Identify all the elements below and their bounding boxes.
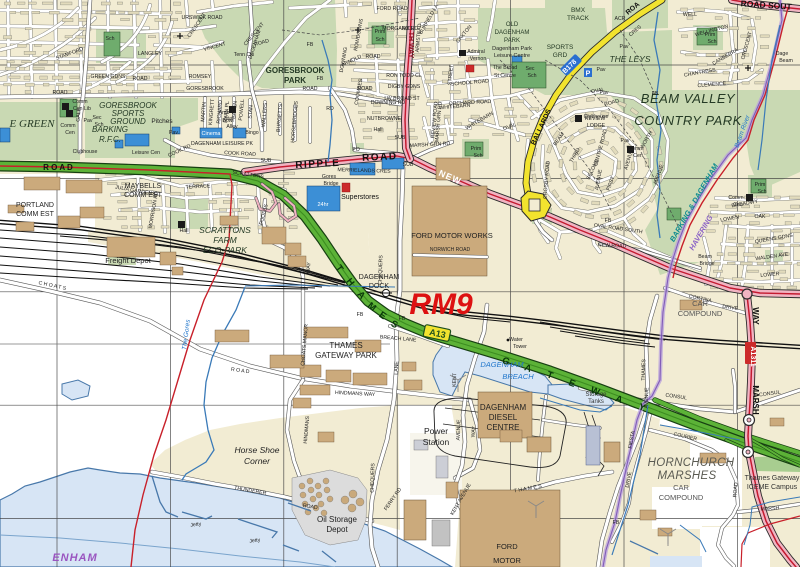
svg-text:Pav: Pav: [597, 67, 606, 73]
svg-text:Sch: Sch: [758, 189, 767, 195]
svg-text:FARM: FARM: [213, 235, 237, 245]
svg-text:Leisure Cen: Leisure Cen: [132, 150, 160, 156]
svg-text:ENHAM: ENHAM: [52, 552, 97, 564]
svg-text:ROAD: ROAD: [303, 86, 318, 92]
svg-text:WELL: WELL: [683, 12, 697, 18]
svg-text:Cen Lib: Cen Lib: [73, 106, 91, 112]
svg-text:Oil Storage: Oil Storage: [317, 515, 358, 524]
svg-text:Sch: Sch: [95, 122, 104, 128]
svg-text:GORESBROOK: GORESBROOK: [266, 66, 325, 75]
svg-text:Pav: Pav: [84, 118, 93, 124]
svg-text:LANGLEY: LANGLEY: [138, 51, 162, 57]
svg-text:Pitches: Pitches: [151, 118, 173, 125]
svg-text:Sta: Sta: [224, 116, 232, 122]
svg-text:Water: Water: [509, 337, 523, 343]
svg-text:Tower: Tower: [513, 344, 527, 350]
svg-text:BMX: BMX: [571, 7, 586, 14]
svg-text:Pav.: Pav.: [169, 130, 179, 136]
svg-text:GRD: GRD: [553, 52, 568, 59]
svg-text:MORGAN CL: MORGAN CL: [382, 26, 414, 32]
svg-text:Beam: Beam: [779, 58, 793, 64]
svg-text:FB: FB: [307, 42, 314, 48]
svg-text:WAY: WAY: [306, 262, 313, 274]
svg-text:NUTBROWNE: NUTBROWNE: [367, 116, 402, 122]
svg-text:GATEWAY PARK: GATEWAY PARK: [315, 351, 377, 360]
svg-text:St Centre: St Centre: [494, 73, 516, 79]
svg-text:Superstores: Superstores: [341, 194, 379, 201]
svg-text:SPORTS: SPORTS: [547, 44, 574, 51]
svg-text:FORD: FORD: [496, 542, 518, 551]
svg-text:Corner: Corner: [244, 456, 271, 466]
svg-text:Alley: Alley: [226, 124, 238, 130]
svg-text:GORESBROOK: GORESBROOK: [186, 86, 224, 92]
svg-text:Pav: Pav: [621, 138, 630, 144]
svg-text:Cen: Cen: [633, 153, 643, 159]
svg-text:PARK: PARK: [504, 38, 520, 44]
svg-text:P: P: [586, 71, 591, 78]
svg-text:Comm: Comm: [728, 195, 743, 201]
svg-text:TH WAY: TH WAY: [407, 32, 414, 59]
svg-text:COMPOUND: COMPOUND: [659, 493, 704, 502]
svg-text:R O A D: R O A D: [43, 163, 73, 172]
svg-text:Leisure Centre: Leisure Centre: [494, 53, 530, 59]
svg-text:COMPOUND: COMPOUND: [678, 309, 723, 318]
svg-text:RM9: RM9: [409, 288, 473, 321]
svg-text:Sch: Sch: [474, 153, 483, 159]
svg-text:Comm: Comm: [60, 123, 75, 129]
svg-text:MARSHES: MARSHES: [658, 470, 717, 482]
svg-text:E GREEN: E GREEN: [9, 118, 56, 130]
svg-text:PORTLAND: PORTLAND: [16, 202, 54, 209]
svg-text:Hall: Hall: [374, 127, 383, 133]
svg-text:Power: Power: [424, 426, 448, 436]
svg-text:CAR: CAR: [673, 483, 689, 492]
svg-text:R.F.C.: R.F.C.: [99, 135, 121, 144]
svg-text:Station: Station: [423, 437, 450, 447]
svg-text:MOTOR: MOTOR: [493, 556, 521, 565]
svg-text:MARSH: MARSH: [751, 385, 760, 415]
svg-text:THAMES: THAMES: [641, 359, 648, 381]
svg-text:A1311: A1311: [749, 346, 756, 366]
svg-text:THAMES: THAMES: [329, 341, 362, 350]
svg-text:AVENUE: AVENUE: [456, 419, 463, 441]
svg-text:HORNCHURCH: HORNCHURCH: [648, 457, 735, 469]
svg-text:Comm: Comm: [72, 99, 87, 105]
svg-text:Cen: Cen: [65, 130, 75, 136]
svg-text:LODGE: LODGE: [587, 123, 606, 129]
svg-text:OLD: OLD: [506, 22, 519, 28]
svg-text:FB: FB: [357, 312, 364, 318]
svg-text:SUB: SUB: [395, 135, 406, 141]
svg-text:LANE: LANE: [394, 361, 400, 375]
svg-text:DAGENHAM: DAGENHAM: [495, 30, 530, 36]
svg-text:AVENUE: AVENUE: [644, 387, 651, 409]
svg-text:COUNTRY PARK: COUNTRY PARK: [634, 113, 742, 128]
svg-text:KENT: KENT: [452, 372, 459, 387]
svg-text:GREEN GDNS: GREEN GDNS: [91, 74, 126, 80]
svg-text:Cinema: Cinema: [202, 131, 222, 137]
svg-text:FB: FB: [613, 520, 620, 526]
svg-text:Horse Shoe: Horse Shoe: [235, 445, 280, 455]
svg-text:SUB: SUB: [261, 158, 272, 164]
svg-text:NORWICH ROAD: NORWICH ROAD: [430, 247, 471, 253]
svg-text:COMM EST: COMM EST: [16, 211, 54, 218]
svg-text:Cen: Cen: [733, 202, 743, 208]
svg-text:Sch: Sch: [528, 73, 537, 79]
svg-text:SUB: SUB: [403, 162, 414, 168]
svg-text:Sch: Sch: [106, 36, 115, 42]
svg-text:ROAD: ROAD: [362, 151, 398, 164]
svg-text:SCRATTONS: SCRATTONS: [199, 225, 251, 235]
svg-text:ACR: ACR: [615, 16, 626, 22]
svg-text:PO: PO: [352, 147, 360, 153]
svg-text:DAGENHAM: DAGENHAM: [480, 403, 527, 412]
svg-text:Gores: Gores: [322, 174, 337, 180]
svg-text:OAK: OAK: [755, 214, 766, 220]
svg-text:STAN: STAN: [247, 105, 254, 119]
svg-text:Sec: Sec: [93, 115, 102, 121]
svg-text:FB: FB: [399, 316, 406, 322]
svg-text:URSWICK ROAD: URSWICK ROAD: [182, 15, 223, 21]
svg-text:FB: FB: [652, 91, 659, 97]
svg-text:PARK: PARK: [284, 76, 306, 85]
svg-text:FORD MOTOR WORKS: FORD MOTOR WORKS: [411, 231, 493, 240]
svg-text:CHEQUERS: CHEQUERS: [377, 255, 384, 285]
svg-text:ROAD: ROAD: [133, 76, 148, 82]
svg-text:Prim: Prim: [755, 182, 766, 188]
svg-text:Beam: Beam: [698, 254, 712, 260]
svg-text:RON TODD CL: RON TODD CL: [386, 73, 422, 79]
svg-text:ROMSEY: ROMSEY: [189, 74, 212, 80]
svg-text:ROAD: ROAD: [366, 54, 381, 60]
svg-text:The Broad: The Broad: [493, 65, 517, 71]
svg-text:CENTRE: CENTRE: [487, 423, 520, 432]
svg-text:CHEQUERS: CHEQUERS: [369, 463, 376, 493]
svg-text:Tanks: Tanks: [588, 399, 604, 405]
svg-text:DIESEL: DIESEL: [489, 413, 518, 422]
svg-text:Prim: Prim: [705, 32, 716, 38]
svg-text:Pav: Pav: [620, 44, 629, 50]
svg-text:TRACK: TRACK: [567, 15, 590, 22]
svg-text:DAGENHAM LEISURE PK: DAGENHAM LEISURE PK: [191, 141, 254, 147]
svg-text:Thames Gateway: Thames Gateway: [745, 475, 800, 482]
svg-text:ROAD: ROAD: [53, 90, 68, 96]
svg-text:Clubhouse: Clubhouse: [73, 149, 98, 155]
svg-text:24hr: 24hr: [317, 202, 328, 208]
svg-text:FB: FB: [317, 76, 324, 82]
svg-text:WAY: WAY: [751, 307, 760, 325]
svg-text:Prim: Prim: [471, 146, 482, 152]
svg-text:Clubhouse: Clubhouse: [584, 114, 609, 120]
svg-text:FORD ROAD: FORD ROAD: [376, 6, 407, 12]
svg-text:Sch: Sch: [376, 37, 385, 43]
svg-text:Bingo: Bingo: [245, 130, 258, 136]
svg-text:Comm: Comm: [628, 146, 643, 152]
svg-text:Admiral: Admiral: [467, 49, 485, 55]
svg-text:Bridge: Bridge: [324, 181, 339, 187]
svg-text:Vernon: Vernon: [470, 56, 487, 62]
svg-text:DIGBY GDNS: DIGBY GDNS: [388, 84, 421, 90]
svg-text:ICEME Campus: ICEME Campus: [747, 484, 798, 491]
svg-text:Pav: Pav: [600, 90, 609, 96]
svg-text:Depot: Depot: [326, 525, 348, 534]
svg-text:RD: RD: [326, 106, 334, 112]
svg-text:DOWNING RD: DOWNING RD: [371, 100, 406, 106]
svg-text:THE LEYS: THE LEYS: [609, 54, 650, 64]
svg-text:Sch: Sch: [708, 39, 717, 45]
svg-text:Sec: Sec: [526, 66, 535, 72]
svg-text:Freight Depot: Freight Depot: [105, 256, 151, 265]
svg-text:Hall: Hall: [180, 228, 189, 234]
svg-text:FB: FB: [605, 218, 612, 224]
svg-text:Dage: Dage: [776, 51, 789, 57]
svg-text:WAY: WAY: [471, 426, 478, 438]
svg-text:Bridge: Bridge: [700, 261, 715, 267]
svg-text:Dagenham Park: Dagenham Park: [492, 46, 532, 52]
svg-text:ECO-PARK: ECO-PARK: [203, 245, 247, 255]
